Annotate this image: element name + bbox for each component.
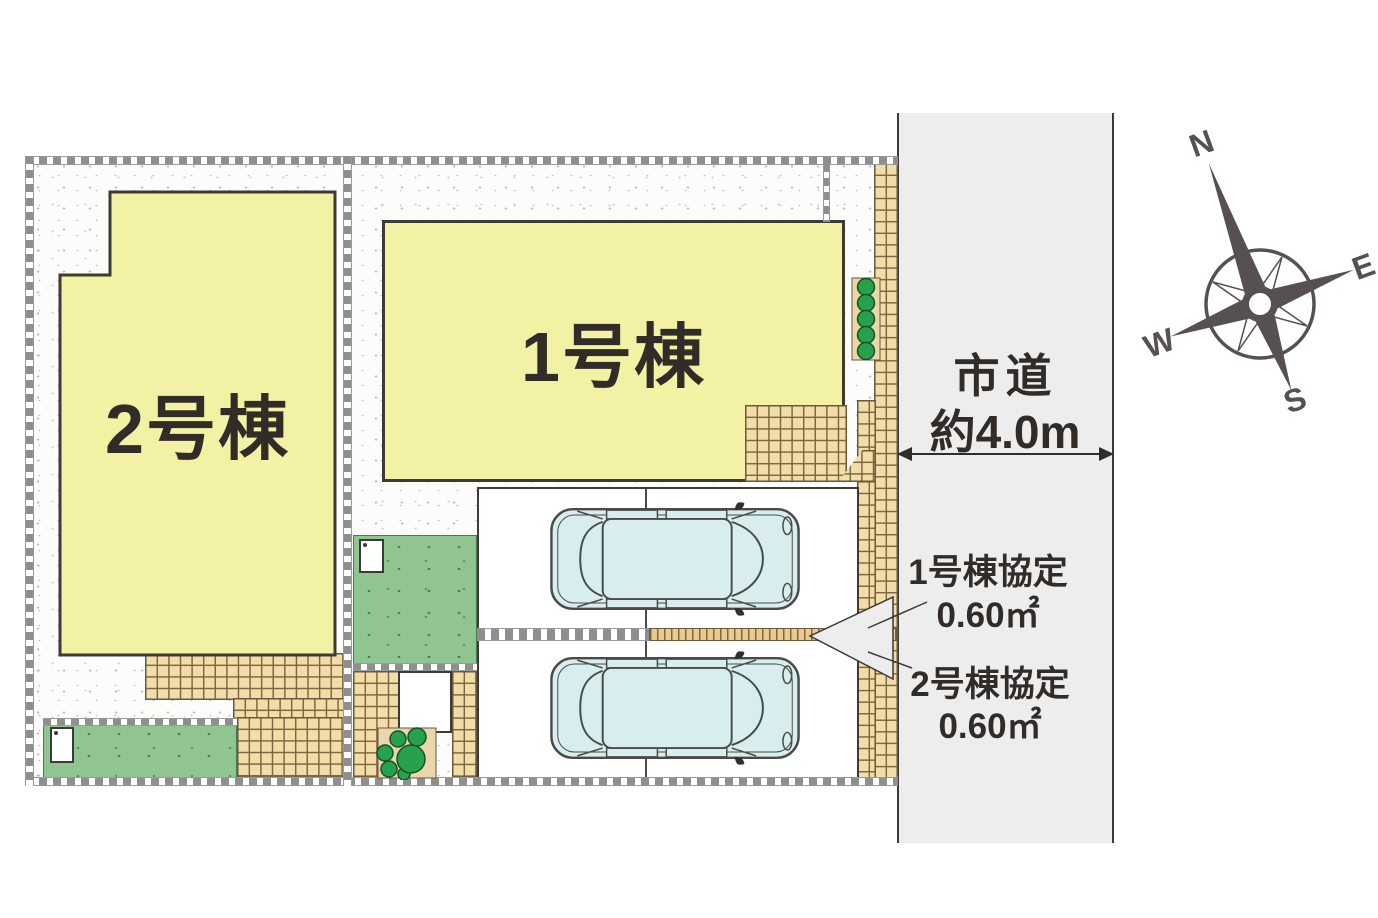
agreement-1-area: 0.60㎡: [893, 587, 1083, 638]
north-fence-segment: [823, 164, 830, 222]
building-1-label: 1号棟: [521, 301, 706, 402]
tree-row-icon: [850, 276, 882, 362]
agreement-2-area: 0.60㎡: [895, 698, 1085, 749]
lot2-lawn-wall: [43, 718, 237, 726]
boundary-north: [25, 156, 898, 165]
compass-west-label: W: [1139, 320, 1180, 364]
compass-south-label: S: [1279, 379, 1311, 420]
parking-divider-wall: [477, 628, 649, 641]
boundary-south: [25, 777, 898, 786]
parking-divider-tiles: [649, 628, 897, 641]
lot1-path-right: [452, 671, 477, 778]
building-2-label-box: 2号棟: [60, 192, 335, 655]
car-2-icon: [548, 651, 802, 765]
lot1-lawn-wall: [353, 663, 477, 671]
compass-rose-icon: N E W S: [1135, 115, 1378, 425]
car-1-icon: [548, 502, 802, 616]
lot2-paving-mid: [233, 698, 350, 719]
compass-north-label: N: [1185, 122, 1219, 164]
lot2-paving-lower: [237, 717, 350, 778]
utility-box-lot2: [50, 727, 74, 763]
compass-east-label: E: [1347, 246, 1378, 287]
lot-divider-line: [343, 156, 352, 786]
boundary-west: [25, 156, 34, 786]
road-width-label: 約4.0m: [890, 396, 1120, 462]
lot1-service-pad: [398, 671, 452, 733]
site-plan-canvas: 2号棟 1号棟: [0, 0, 1378, 918]
building-2-label: 2号棟: [105, 373, 290, 474]
utility-box-lot1: [359, 539, 384, 573]
entrance-porch: [745, 405, 847, 482]
lot2-paving-upper: [145, 653, 350, 700]
tree-cluster-icon: [374, 726, 442, 780]
